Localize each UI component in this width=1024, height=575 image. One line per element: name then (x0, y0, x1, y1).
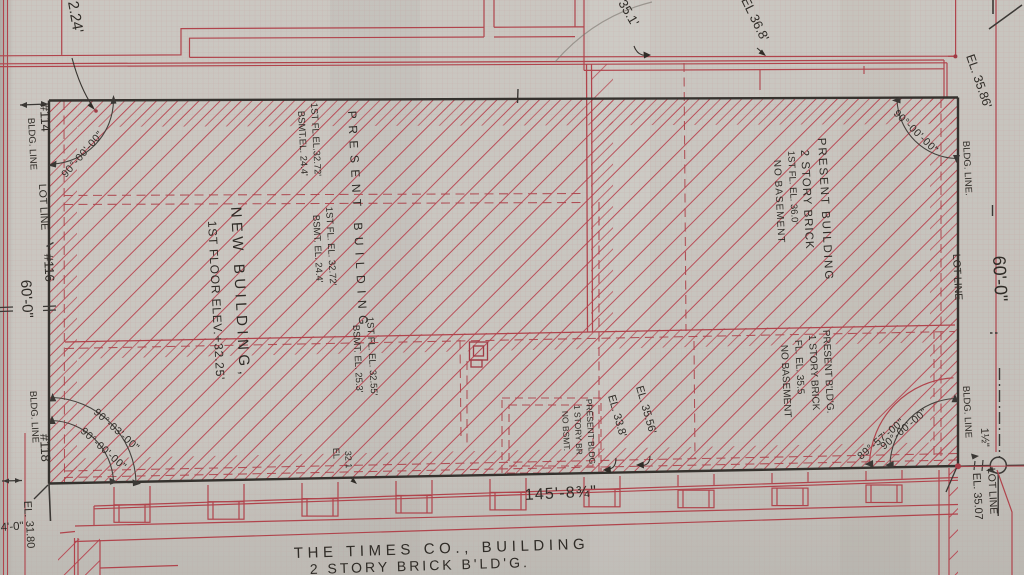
svg-text:#118: #118 (37, 433, 53, 462)
svg-text:LOT LINE: LOT LINE (985, 468, 999, 515)
svg-text:#114: #114 (37, 103, 53, 132)
svg-text:32.1: 32.1 (343, 451, 354, 469)
svg-text:60'-0": 60'-0" (17, 279, 36, 318)
svg-text:NO BSMT.: NO BSMT. (560, 411, 572, 452)
svg-text:4'-0": 4'-0" (0, 520, 24, 534)
svg-text:1½": 1½" (978, 428, 991, 448)
svg-text:EL: EL (331, 448, 342, 460)
svg-text:#116: #116 (41, 253, 57, 282)
svg-text:LOT LINE: LOT LINE (950, 254, 964, 301)
svg-text:60'-0": 60'-0" (989, 255, 1011, 302)
svg-text:31.80: 31.80 (23, 521, 36, 549)
svg-text:EL.: EL. (21, 501, 34, 518)
svg-text:EL. 35.07: EL. 35.07 (970, 473, 984, 521)
svg-text:LOT LINE: LOT LINE (36, 184, 50, 231)
